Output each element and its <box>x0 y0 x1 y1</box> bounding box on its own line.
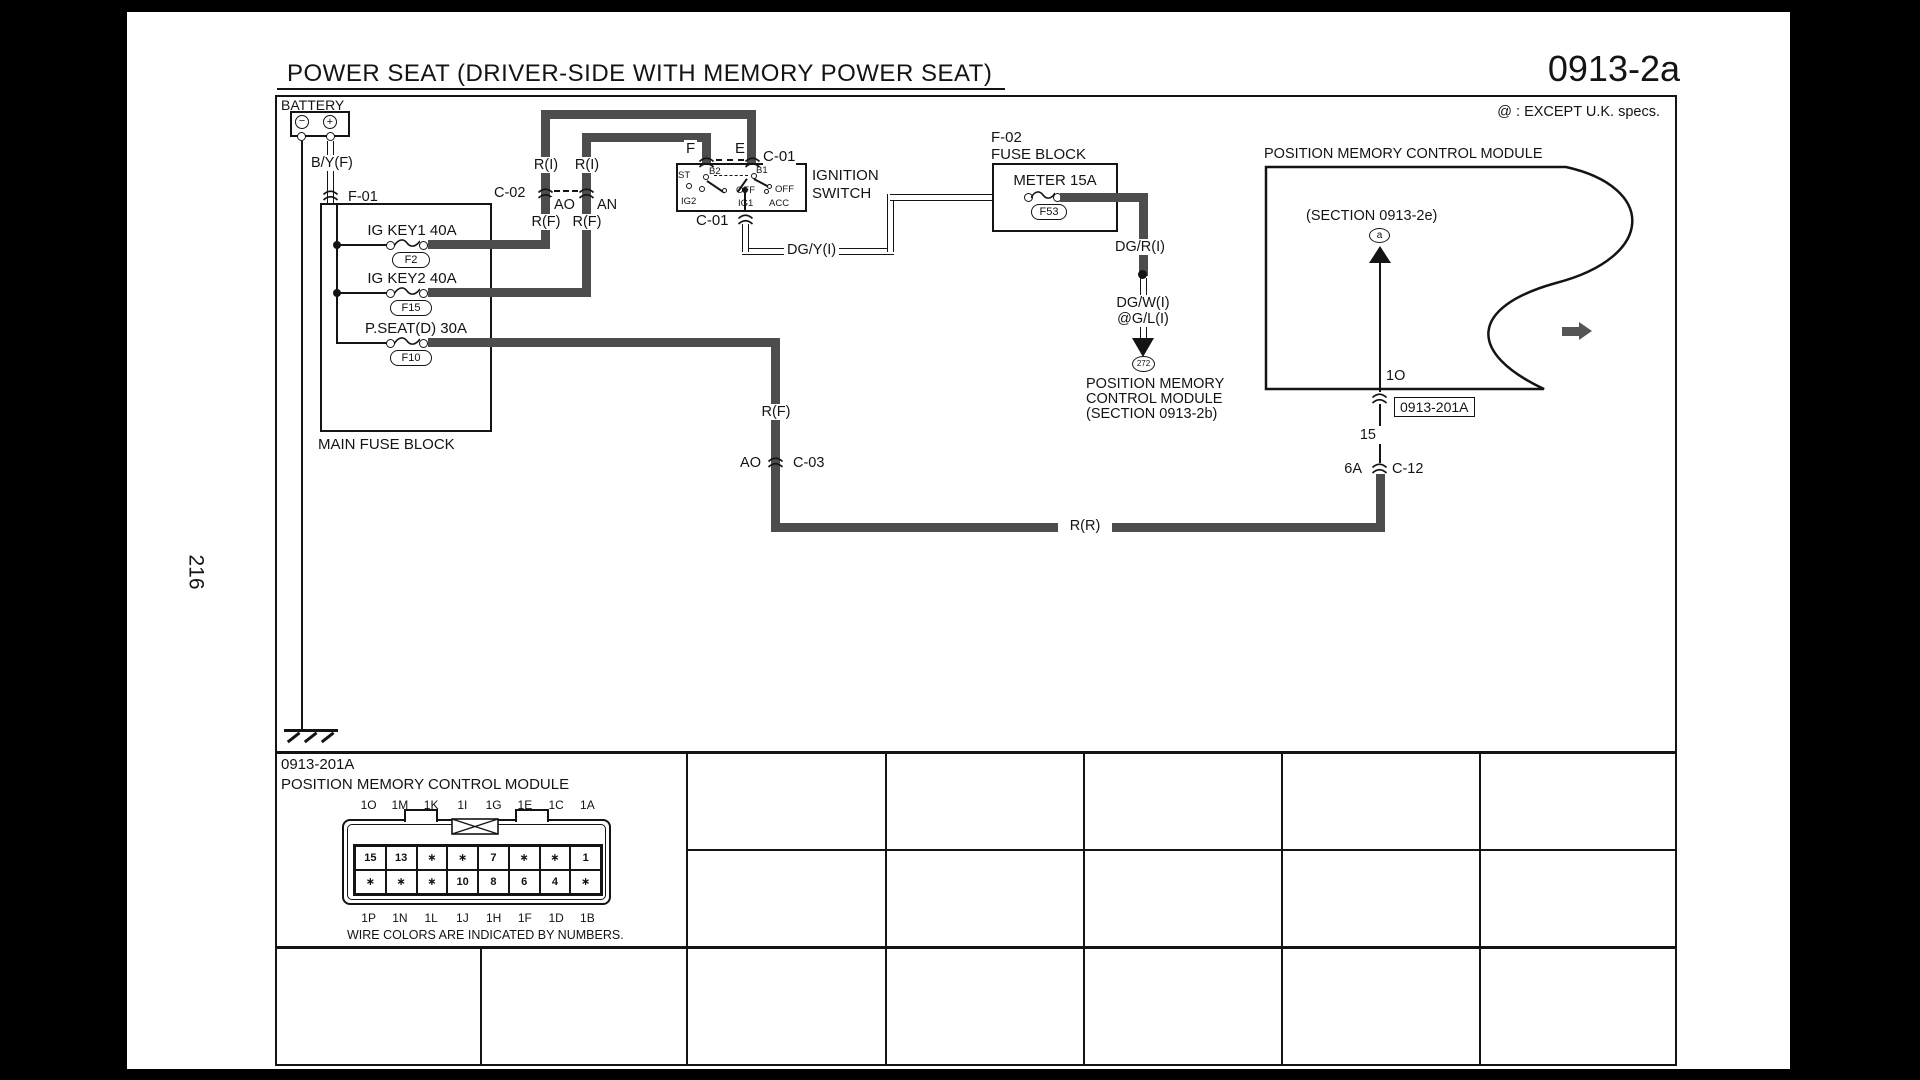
pin-label-an: AN <box>594 197 620 213</box>
connector-c02-link <box>554 190 578 192</box>
pin-cell: 15 <box>355 846 386 870</box>
manual-page: 216 POWER SEAT (DRIVER-SIDE WITH MEMORY … <box>0 0 1920 1080</box>
offpage-arrow-down-icon <box>1132 338 1154 357</box>
fuse3-feed-line <box>336 342 389 344</box>
connector-c12-label: C-12 <box>1392 461 1423 477</box>
module-point-a: a <box>1369 228 1390 243</box>
wire-colors-note: WIRE COLORS ARE INDICATED BY NUMBERS. <box>347 928 609 942</box>
ignition-off-contact-icon <box>722 188 727 193</box>
pin-label-ao-c03: AO <box>726 455 764 471</box>
ignition-switch-name2: SWITCH <box>812 185 871 202</box>
f02-id: F-02 <box>991 129 1022 146</box>
ignition-lever-link <box>714 175 748 176</box>
connector-shell-tab <box>404 809 438 822</box>
pin-label: 1L <box>416 911 447 925</box>
connector-c01-bottom-icon <box>737 213 754 225</box>
pin-label: 1H <box>478 911 509 925</box>
offpage-dest-line3: (SECTION 0913-2b) <box>1086 406 1217 422</box>
fuse1-terminal-icon <box>419 241 428 250</box>
connector-c01-link <box>716 159 744 161</box>
fuse2-element-icon <box>394 287 420 297</box>
pin-cell: ∗ <box>540 846 571 870</box>
splice-dot <box>1138 270 1147 279</box>
pin-cell: 1 <box>570 846 601 870</box>
pin-label-15: 15 <box>1352 427 1376 443</box>
title-underline <box>277 88 1005 90</box>
pin-label: 1B <box>572 911 603 925</box>
battery-neg-post-icon <box>297 132 306 141</box>
wire-pseat-horizontal <box>428 338 780 347</box>
pin-cell: ∗ <box>570 870 601 894</box>
connector-c01-icon <box>744 156 761 168</box>
connector-c12-icon <box>1371 462 1388 474</box>
ignition-off2-contact-icon <box>767 184 772 189</box>
wire-dgy-rise <box>887 194 894 252</box>
wire-dgy-drop <box>742 224 749 252</box>
ground-icon <box>284 729 338 732</box>
table-lower-line <box>277 946 1675 949</box>
pin-cell: ∗ <box>509 846 540 870</box>
fuse3-id: F10 <box>390 350 432 366</box>
wire-15-lower <box>1379 444 1381 463</box>
ignition-switch-name1: IGNITION <box>812 167 879 184</box>
table-divider-bottom <box>1083 948 1085 1065</box>
wire-igkey2 <box>428 288 591 297</box>
wire-rr-rise <box>1376 474 1385 532</box>
battery-plus-terminal-icon: + <box>323 115 337 129</box>
wire-run-outer <box>541 110 756 119</box>
connector-f01-icon <box>322 189 339 201</box>
wire-label-rf-right: R(F) <box>562 214 612 230</box>
pin-label: 1O <box>353 798 384 812</box>
connector-shell-tab <box>515 809 549 822</box>
wire-label-ri-right: R(I) <box>562 157 612 173</box>
connector-0913-201a-icon <box>1371 392 1388 404</box>
wire-label-dgr: DG/R(I) <box>1112 239 1168 255</box>
connector-c01-bottom-label: C-01 <box>696 212 729 229</box>
fuse1-feed-line <box>337 244 389 246</box>
module-outline <box>1264 145 1684 395</box>
pin-label: 1J <box>447 911 478 925</box>
ignition-acc-contact-icon <box>764 189 769 194</box>
pin-label: 1A <box>572 798 603 812</box>
connector-ref-box: 0913-201A <box>1394 397 1475 417</box>
ignition-ig2-contact-icon <box>699 186 705 192</box>
fuse1-element-icon <box>394 239 420 249</box>
module-pin-1o: 1O <box>1386 368 1405 384</box>
ignition-label-off-right: OFF <box>775 184 794 195</box>
pin-labels-top: 1O 1M 1K 1I 1G 1E 1C 1A <box>353 798 603 812</box>
wire-rf-column <box>771 338 780 532</box>
module-section-ref: (SECTION 0913-2e) <box>1306 208 1437 224</box>
ignition-terminal-ig1: IG1 <box>738 198 753 209</box>
ignition-st-contact-icon <box>686 183 692 189</box>
pin-label: 1N <box>384 911 415 925</box>
battery-minus-terminal-icon: − <box>295 115 309 129</box>
pin-label: 1I <box>447 798 478 812</box>
table-mid-line <box>687 849 1675 851</box>
connector-c02-icon <box>578 187 595 199</box>
fuse2-id: F15 <box>390 300 432 316</box>
table-divider-bottom <box>1281 948 1283 1065</box>
connector-pin-grid: 15 13 ∗ ∗ 7 ∗ ∗ 1 ∗ ∗ ∗ 10 8 6 4 ∗ <box>353 844 603 896</box>
pin-labels-bottom: 1P 1N 1L 1J 1H 1F 1D 1B <box>353 911 603 925</box>
pin-cell: ∗ <box>447 846 478 870</box>
table-divider-bottom <box>885 948 887 1065</box>
wire-label-dgw-uk: @G/L(I) <box>1106 311 1180 327</box>
pin-cell: 7 <box>478 846 509 870</box>
table-divider-bottom <box>480 948 482 1065</box>
table-divider-bottom <box>1479 948 1481 1065</box>
pin-cell: 13 <box>386 846 417 870</box>
pin-label: 1G <box>478 798 509 812</box>
continuation-arrow-head-icon <box>1579 322 1592 340</box>
ignition-b2-contact-icon <box>703 174 709 180</box>
fuse3-element-icon <box>394 337 420 347</box>
wire-meter-out <box>1060 193 1148 202</box>
meter-fuse-id: F53 <box>1031 204 1067 220</box>
pin-label: 1P <box>353 911 384 925</box>
ground-wire <box>301 141 303 730</box>
connector-keyway-icon <box>451 818 499 835</box>
fuse1-id: F2 <box>392 252 430 268</box>
pin-cell: ∗ <box>417 870 448 894</box>
module-arrow-up-icon <box>1369 246 1391 263</box>
fuse3-terminal-icon <box>419 339 428 348</box>
ignition-terminal-ig2: IG2 <box>681 196 696 207</box>
fuse2-name: IG KEY2 40A <box>358 270 466 287</box>
connector-c02-label: C-02 <box>494 185 525 201</box>
f02-label: FUSE BLOCK <box>991 146 1086 163</box>
table-divider-bottom <box>686 948 688 1065</box>
wire-igkey1 <box>428 240 550 249</box>
fuse1-name: IG KEY1 40A <box>358 222 466 239</box>
pin-cell: 8 <box>478 870 509 894</box>
pin-label-f: F <box>684 140 697 157</box>
pin-cell: 10 <box>447 870 478 894</box>
ignition-terminal-acc: ACC <box>769 198 789 209</box>
connector-c01-top-label: C-01 <box>763 148 796 165</box>
fuse-bus-line <box>336 205 338 344</box>
pin-cell: ∗ <box>355 870 386 894</box>
pin-label-6a: 6A <box>1332 461 1362 477</box>
fuse2-terminal-icon <box>419 289 428 298</box>
ignition-terminal-st: ST <box>678 170 690 181</box>
diagram-code: 0913-2a <box>1490 48 1680 90</box>
wire-label-dgw: DG/W(I) <box>1106 295 1180 311</box>
wire-label-byf: B/Y(F) <box>308 155 356 171</box>
continuation-arrow-icon <box>1562 327 1579 336</box>
pin-cell: 6 <box>509 870 540 894</box>
pin-label: 1F <box>509 911 540 925</box>
offpage-circle-ref: 272 <box>1132 356 1155 372</box>
pin-label-ao: AO <box>551 197 578 213</box>
pin-cell: 4 <box>540 870 571 894</box>
page-number: 216 <box>184 554 208 589</box>
fuse3-name: P.SEAT(D) 30A <box>352 320 480 337</box>
pin-cell: ∗ <box>386 870 417 894</box>
connector-c01-icon <box>698 156 715 168</box>
pin-cell: ∗ <box>417 846 448 870</box>
module-internal-line <box>1379 262 1381 392</box>
table-connector-name: POSITION MEMORY CONTROL MODULE <box>281 776 569 793</box>
offpage-dest-line2: CONTROL MODULE <box>1086 391 1222 407</box>
connector-c03-icon <box>767 456 784 468</box>
main-fuse-block-label: MAIN FUSE BLOCK <box>318 436 455 453</box>
pin-label-e: E <box>733 140 747 157</box>
offpage-dest-line1: POSITION MEMORY <box>1086 376 1224 392</box>
wire-label-rf: R(F) <box>750 404 802 420</box>
table-top-line <box>277 751 1675 754</box>
meter-fuse-name: METER 15A <box>1000 172 1110 189</box>
pin-label: 1D <box>541 911 572 925</box>
wire-15-upper <box>1379 404 1381 426</box>
connector-c03-label: C-03 <box>790 455 827 471</box>
fuse2-feed-line <box>337 292 389 294</box>
wire-dgr-drop <box>1139 193 1148 276</box>
wire-label-rr: R(R) <box>1058 518 1112 534</box>
table-connector-ref: 0913-201A <box>281 756 354 773</box>
meter-fuse-element-icon <box>1031 191 1055 201</box>
battery-pos-post-icon <box>326 132 335 141</box>
wire-label-dgy: DG/Y(I) <box>784 242 839 258</box>
page-title: POWER SEAT (DRIVER-SIDE WITH MEMORY POWE… <box>287 60 992 88</box>
